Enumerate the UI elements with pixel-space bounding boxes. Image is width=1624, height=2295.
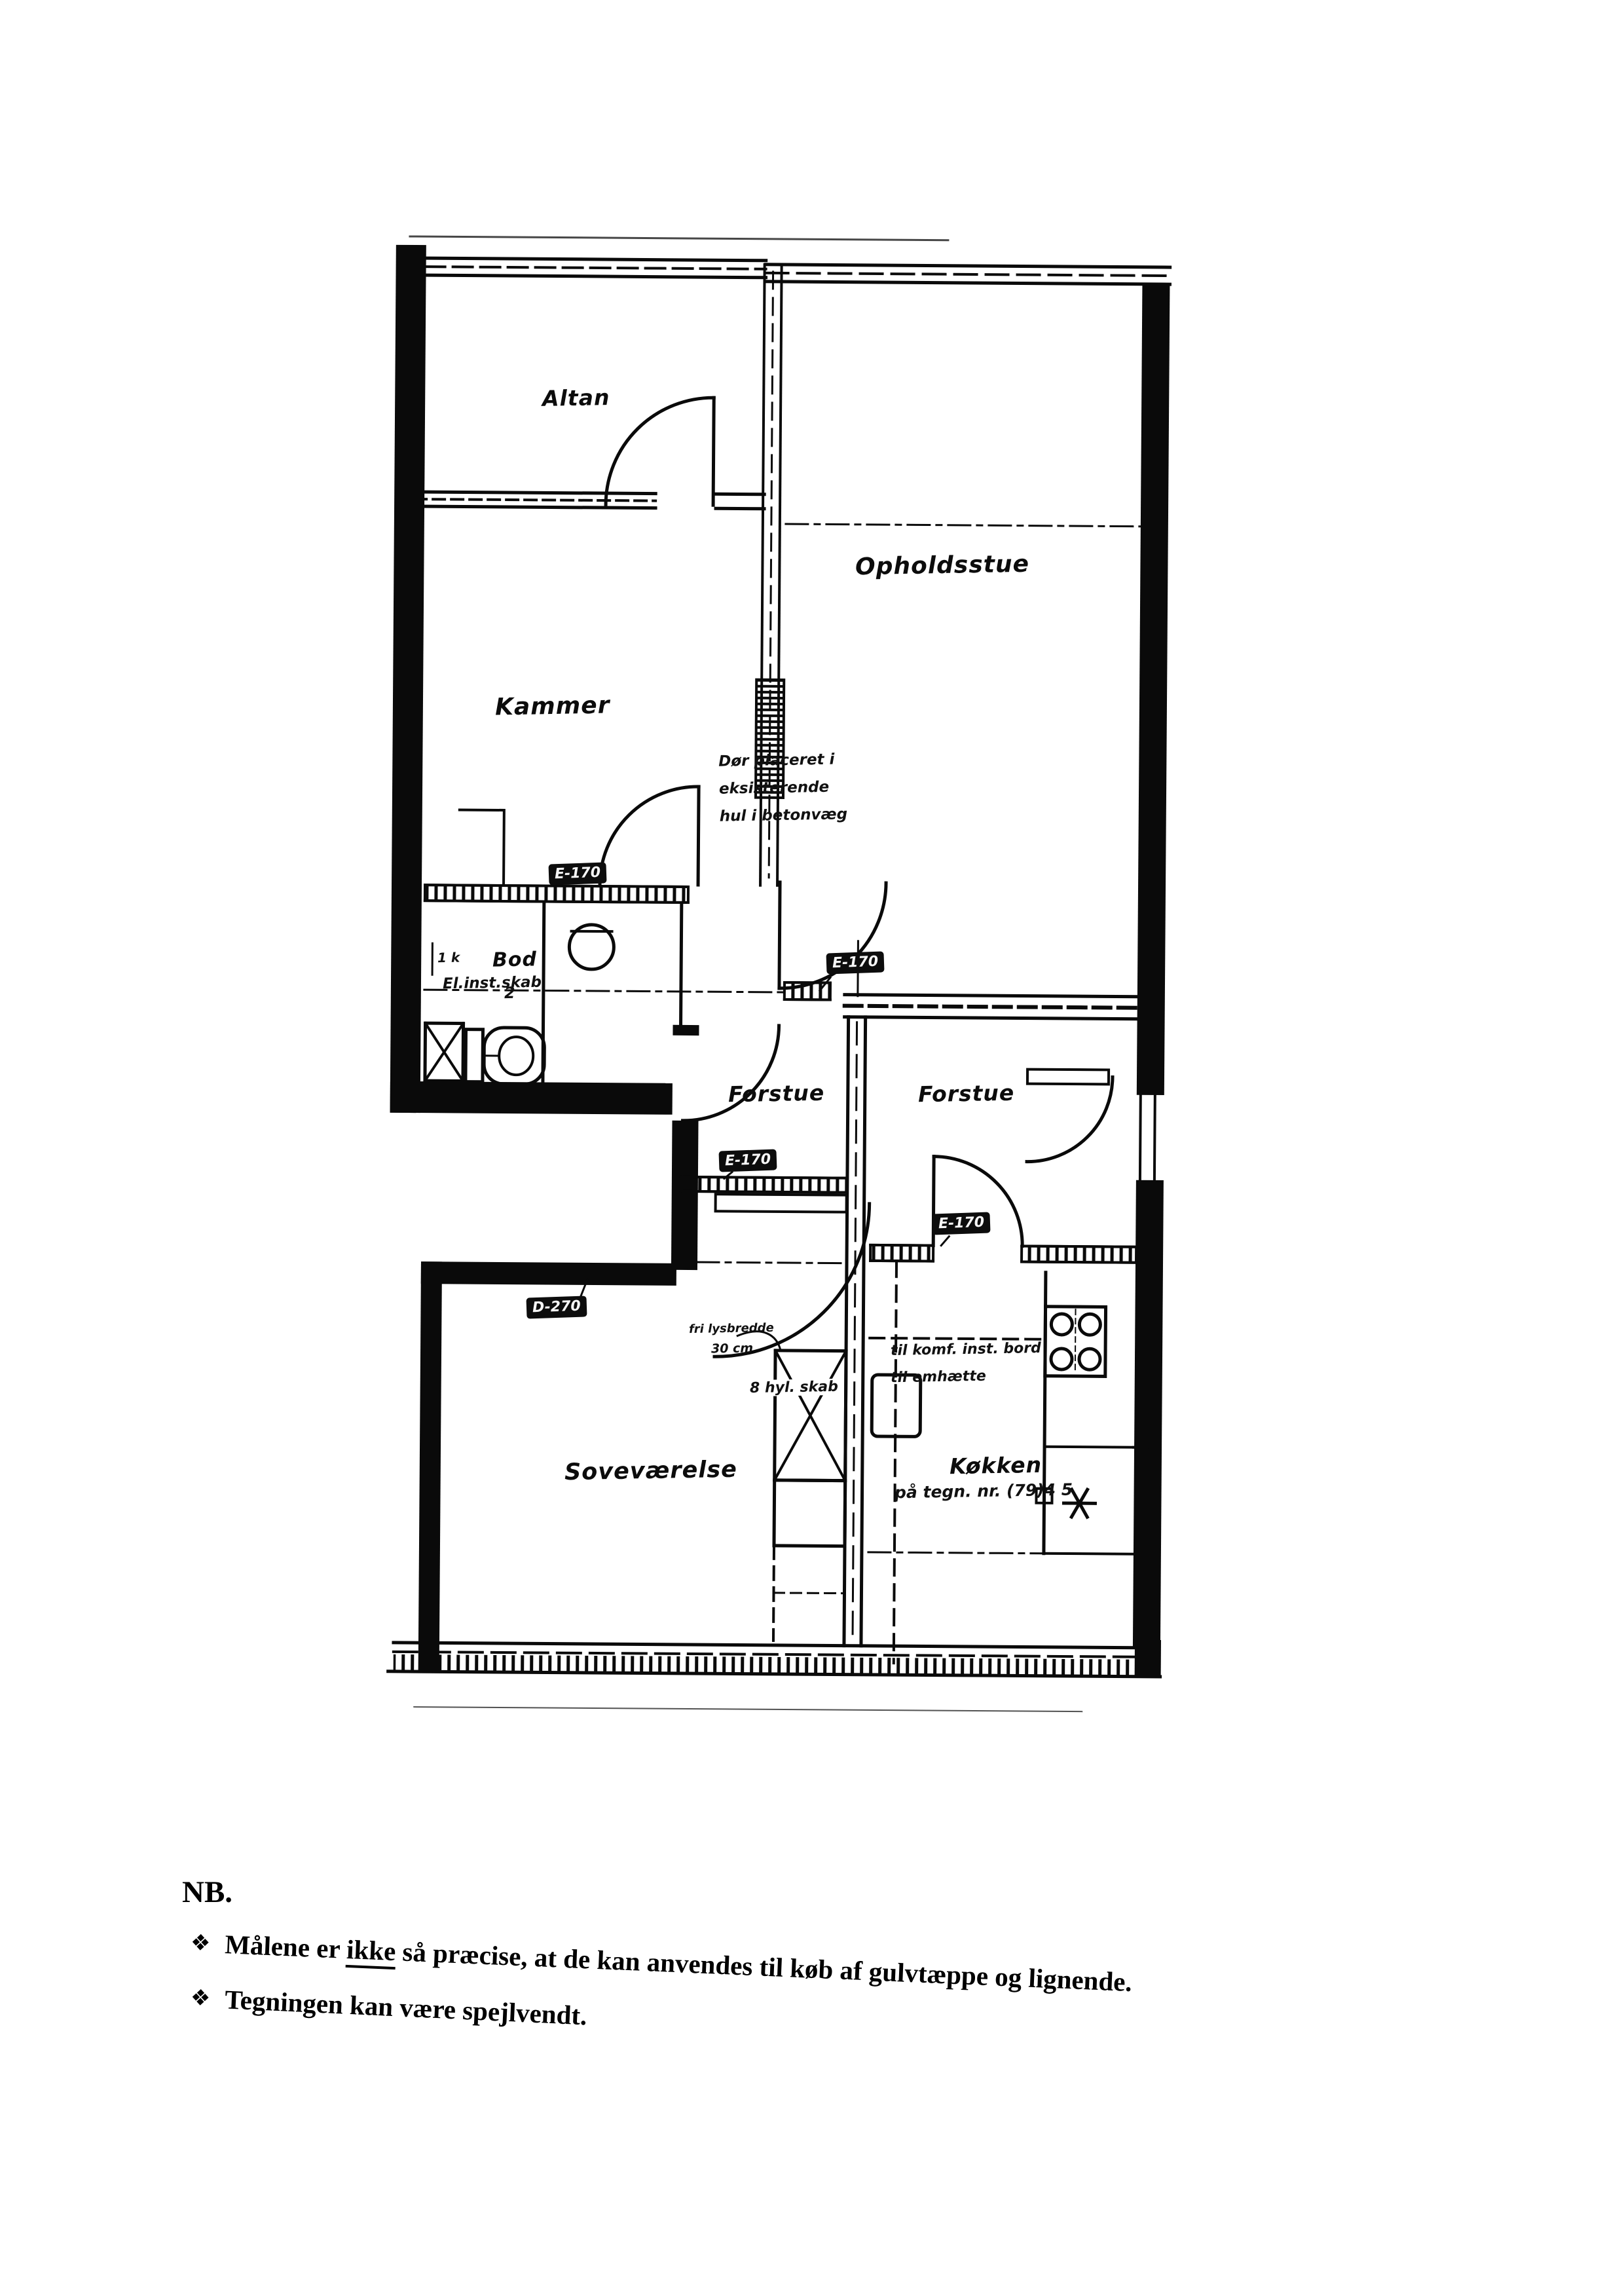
wardrobe-icon — [735, 1332, 846, 1641]
room-label-forstue-right: Forstue — [918, 1080, 1015, 1108]
shower-icon — [425, 1023, 464, 1081]
kitchen-drawing-ref: på tegn. nr. (79)4 5 — [895, 1480, 1073, 1502]
toilet-icon — [466, 1028, 545, 1085]
room-label-altan: Altan — [542, 384, 610, 411]
dash-dot-lines — [420, 521, 1151, 1554]
wc-pan-icon — [569, 925, 614, 969]
nb-title: NB. — [182, 1875, 232, 1910]
scanned-floor-plan-page: Altan Opholdsstue Kammer Bod 2 Forstue F… — [0, 0, 1624, 2295]
door-tag-sovevaerelse: D-270 — [526, 1296, 587, 1318]
window-icon — [1140, 1095, 1155, 1180]
left-mark: 1 k — [437, 950, 460, 966]
door-tag-koekken: E-170 — [932, 1212, 990, 1235]
wall-note-line3: hul i betonvæg — [719, 800, 847, 830]
top-window-bands — [397, 236, 1170, 284]
room-label-opholdsstue: Opholdsstue — [855, 551, 1030, 581]
bottom-window-band — [388, 1643, 1160, 1712]
room-label-sovevaerelse: Soveværelse — [564, 1457, 738, 1486]
wall-note-line1: Dør placeret i — [718, 745, 847, 775]
room-label-kammer: Kammer — [495, 692, 610, 720]
kitchen-note-2: til emhætte — [891, 1368, 986, 1387]
door-tag-forstue-left: E-170 — [718, 1149, 777, 1172]
wall-note: Dør placeret i eksisterende hul i betonv… — [718, 745, 847, 830]
balcony-front-wall — [396, 492, 764, 509]
wall-note-line2: eksisterende — [719, 773, 847, 802]
footer-note-1-pre: Målene er — [224, 1929, 347, 1964]
closet-width-note-2: 30 cm — [711, 1341, 753, 1356]
vent-shaft-line — [894, 1261, 896, 1663]
footer-note-1-underlined: ikke — [346, 1934, 396, 1969]
room-label-koekken: Køkken — [950, 1452, 1043, 1479]
stove-icon — [1045, 1307, 1106, 1377]
closet-label: 8 hyl. skab — [748, 1379, 840, 1396]
kitchen-note-1: til komf. inst. bord — [891, 1340, 1041, 1359]
diamond-bullet-icon: ❖ — [190, 1927, 211, 1959]
closet-width-note-1: fri lysbredde — [689, 1321, 774, 1336]
el-cabinet-note: El.inst.skab — [443, 974, 542, 993]
door-tag-stue: E-170 — [826, 951, 884, 974]
room-label-forstue-left: Forstue — [728, 1080, 825, 1108]
diamond-bullet-icon: ❖ — [190, 1982, 212, 2014]
party-wall — [844, 941, 866, 1646]
door-tag-kammer: E-170 — [548, 862, 606, 885]
room-label-bod: Bod — [492, 948, 538, 971]
